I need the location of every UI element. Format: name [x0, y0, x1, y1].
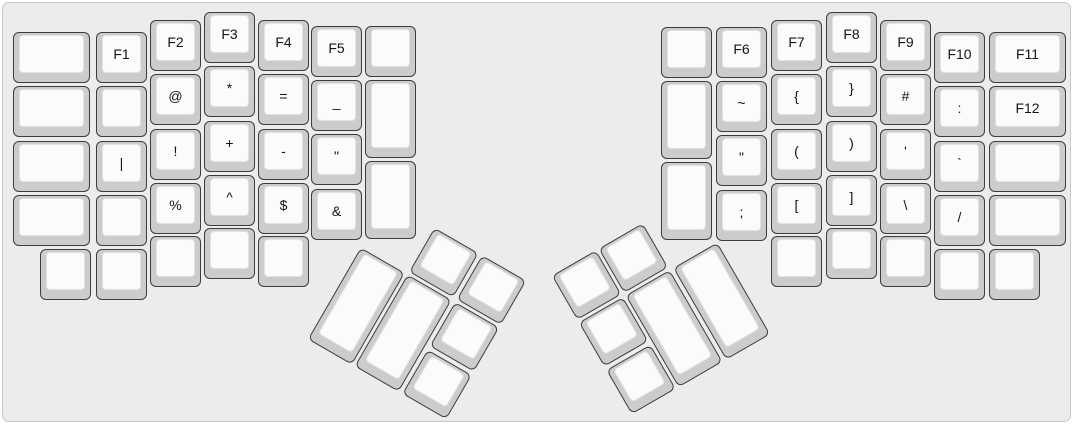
keycap-top-surface: ~	[722, 84, 761, 122]
key-backtick[interactable]: `	[934, 141, 985, 192]
key-legend: &	[332, 204, 341, 218]
keycap-top-surface: `	[940, 144, 979, 182]
key-blank[interactable]	[365, 80, 416, 158]
keycap-top-surface	[605, 229, 658, 281]
keycap-top-surface	[46, 252, 85, 290]
keycap-top-surface	[19, 198, 84, 236]
key-legend: |	[120, 156, 124, 170]
key-tilde[interactable]: ~	[716, 81, 767, 132]
keycap-top-surface: F7	[777, 23, 816, 61]
keycap-top-surface: (	[777, 132, 816, 170]
key-legend: ;	[740, 205, 744, 219]
key-legend: '	[904, 144, 907, 158]
key-legend: F5	[328, 41, 344, 55]
key-f11[interactable]: F11	[989, 32, 1066, 83]
key-dollar[interactable]: $	[258, 183, 309, 234]
key-legend: =	[279, 89, 287, 103]
key-blank[interactable]	[13, 32, 90, 83]
key-double-quote[interactable]: "	[311, 134, 362, 185]
keycap-top-surface: F3	[210, 15, 249, 53]
key-ampersand[interactable]: &	[311, 189, 362, 240]
key-legend: {	[794, 89, 799, 103]
keycap-top-surface: #	[886, 77, 925, 115]
key-legend: F8	[843, 27, 859, 41]
key-blank[interactable]	[13, 141, 90, 192]
key-legend: "	[334, 149, 339, 163]
key-legend: @	[168, 89, 182, 103]
keycap-top-surface: \	[886, 186, 925, 224]
key-f7[interactable]: F7	[771, 20, 822, 71]
keycap-top-surface: _	[317, 83, 356, 121]
key-blank[interactable]	[989, 249, 1040, 300]
key-blank[interactable]	[96, 249, 147, 300]
key-legend: F12	[1015, 101, 1039, 115]
key-blank[interactable]	[96, 86, 147, 137]
keycap-top-surface: &	[317, 192, 356, 230]
key-close-paren[interactable]: )	[826, 121, 877, 172]
keycap-top-surface: /	[940, 198, 979, 236]
key-legend: !	[174, 144, 178, 158]
keycap-top-surface	[777, 239, 816, 277]
key-legend: %	[169, 198, 181, 212]
key-legend: _	[333, 95, 341, 109]
key-legend: F11	[1016, 47, 1039, 61]
key-legend: F4	[275, 35, 291, 49]
key-semicolon[interactable]: ;	[716, 190, 767, 241]
keycap-top-surface	[210, 231, 249, 269]
keycap-top-surface: ]	[832, 178, 871, 216]
keycap-top-surface: =	[264, 77, 303, 115]
keycap-top-surface	[886, 239, 925, 277]
key-blank[interactable]	[771, 236, 822, 287]
key-legend: F3	[221, 27, 237, 41]
key-caret[interactable]: ^	[204, 175, 255, 226]
key-f9[interactable]: F9	[880, 20, 931, 71]
key-plus[interactable]: +	[204, 121, 255, 172]
keycap-top-surface: F10	[940, 35, 979, 73]
keycap-top-surface	[667, 84, 706, 149]
key-blank[interactable]	[989, 195, 1066, 246]
keycap-top-surface	[102, 198, 141, 236]
keycap-top-surface: F11	[995, 35, 1060, 73]
keycap-top-surface: F4	[264, 23, 303, 61]
keycap-top-surface	[558, 256, 611, 308]
key-blank[interactable]	[934, 249, 985, 300]
key-legend: F7	[788, 35, 804, 49]
key-legend: ~	[737, 96, 745, 110]
key-legend: #	[902, 89, 910, 103]
keycap-top-surface	[419, 233, 472, 285]
key-legend: F6	[733, 42, 749, 56]
keycap-top-surface	[19, 89, 84, 127]
key-legend: "	[739, 150, 744, 164]
keycap-top-surface	[667, 30, 706, 68]
keycap-top-surface	[940, 252, 979, 290]
key-blank[interactable]	[880, 236, 931, 287]
keyboard-canvas: F1|F2@!%F3*+^F4=-$F5_"& F6~";F7{([F8})]F…	[2, 2, 1071, 422]
key-legend: $	[280, 198, 288, 212]
key-at[interactable]: @	[150, 74, 201, 125]
keycap-top-surface: $	[264, 186, 303, 224]
key-legend: +	[225, 136, 233, 150]
key-equals[interactable]: =	[258, 74, 309, 125]
key-legend: ]	[850, 190, 854, 204]
key-f8[interactable]: F8	[826, 12, 877, 63]
keycap-top-surface	[613, 350, 666, 402]
key-legend: (	[794, 144, 799, 158]
key-legend: [	[795, 198, 799, 212]
keycap-top-surface: F12	[995, 89, 1060, 127]
key-blank[interactable]	[204, 228, 255, 279]
key-f10[interactable]: F10	[934, 32, 985, 83]
key-asterisk[interactable]: *	[204, 66, 255, 117]
keycap-top-surface	[19, 35, 84, 73]
keycap-top-surface: ^	[210, 178, 249, 216]
key-colon[interactable]: :	[934, 86, 985, 137]
key-exclamation[interactable]: !	[150, 129, 201, 180]
keycap-top-surface: *	[210, 69, 249, 107]
keycap-top-surface	[832, 231, 871, 269]
keycap-top-surface: -	[264, 132, 303, 170]
key-apostrophe[interactable]: '	[880, 129, 931, 180]
key-percent[interactable]: %	[150, 183, 201, 234]
keycap-top-surface: @	[156, 77, 195, 115]
key-f6[interactable]: F6	[716, 27, 767, 78]
key-legend: F2	[167, 35, 183, 49]
keycap-top-surface: F9	[886, 23, 925, 61]
keycap-top-surface	[102, 252, 141, 290]
key-blank[interactable]	[40, 249, 91, 300]
key-legend: /	[958, 210, 962, 224]
keycap-top-surface	[995, 252, 1034, 290]
key-blank[interactable]	[826, 228, 877, 279]
keycap-top-surface	[995, 198, 1060, 236]
keycap-top-surface: F6	[722, 30, 761, 68]
keycap-top-surface	[371, 29, 410, 67]
keycap-top-surface: '	[886, 132, 925, 170]
keycap-top-surface: F8	[832, 15, 871, 53]
key-blank[interactable]	[96, 195, 147, 246]
key-legend: F1	[113, 47, 129, 61]
key-f3[interactable]: F3	[204, 12, 255, 63]
key-blank[interactable]	[661, 81, 712, 159]
keycap-top-surface: {	[777, 77, 816, 115]
key-legend: :	[958, 101, 962, 115]
key-legend: ^	[226, 190, 233, 204]
keycap-top-surface	[19, 144, 84, 182]
keycap-top-surface: ;	[722, 193, 761, 231]
key-f12[interactable]: F12	[989, 86, 1066, 137]
keycap-top-surface	[371, 83, 410, 148]
keycap-top-surface: "	[722, 138, 761, 176]
key-legend: `	[957, 156, 962, 170]
keycap-top-surface	[995, 144, 1060, 182]
key-minus[interactable]: -	[258, 129, 309, 180]
key-legend: *	[227, 81, 232, 95]
keycap-top-surface: "	[317, 137, 356, 175]
keycap-top-surface: %	[156, 186, 195, 224]
keycap-top-surface: [	[777, 186, 816, 224]
key-double-quote[interactable]: "	[716, 135, 767, 186]
key-f2[interactable]: F2	[150, 20, 201, 71]
keycap-top-surface	[102, 89, 141, 127]
key-blank[interactable]	[365, 26, 416, 77]
keycap-top-surface: F2	[156, 23, 195, 61]
keycap-top-surface	[156, 239, 195, 277]
keycap-top-surface: !	[156, 132, 195, 170]
key-close-bracket[interactable]: ]	[826, 175, 877, 226]
key-legend: F9	[897, 35, 913, 49]
key-open-bracket[interactable]: [	[771, 183, 822, 234]
keycap-top-surface: +	[210, 124, 249, 162]
key-legend: )	[849, 136, 854, 150]
key-blank[interactable]	[13, 86, 90, 137]
key-open-paren[interactable]: (	[771, 129, 822, 180]
key-f5[interactable]: F5	[311, 26, 362, 77]
key-blank[interactable]	[13, 195, 90, 246]
keycap-top-surface: |	[102, 144, 141, 182]
keycap-top-surface: F5	[317, 29, 356, 67]
key-backslash[interactable]: \	[880, 183, 931, 234]
key-blank[interactable]	[258, 236, 309, 287]
key-close-brace[interactable]: }	[826, 66, 877, 117]
keycap-top-surface: :	[940, 89, 979, 127]
keycap-top-surface: }	[832, 69, 871, 107]
key-pipe[interactable]: |	[96, 141, 147, 192]
keycap-top-surface: F1	[102, 35, 141, 73]
key-blank[interactable]	[661, 27, 712, 78]
keycap-top-surface	[264, 239, 303, 277]
key-legend: -	[281, 144, 286, 158]
keycap-top-surface	[467, 261, 520, 313]
key-hash[interactable]: #	[880, 74, 931, 125]
key-blank[interactable]	[989, 141, 1066, 192]
key-underscore[interactable]: _	[311, 80, 362, 131]
key-legend: F10	[947, 47, 971, 61]
key-legend: \	[904, 198, 908, 212]
key-blank[interactable]	[150, 236, 201, 287]
key-f4[interactable]: F4	[258, 20, 309, 71]
key-slash[interactable]: /	[934, 195, 985, 246]
key-open-brace[interactable]: {	[771, 74, 822, 125]
keycap-top-surface: )	[832, 124, 871, 162]
key-f1[interactable]: F1	[96, 32, 147, 83]
key-legend: }	[849, 81, 854, 95]
keycap-top-surface	[412, 355, 465, 407]
